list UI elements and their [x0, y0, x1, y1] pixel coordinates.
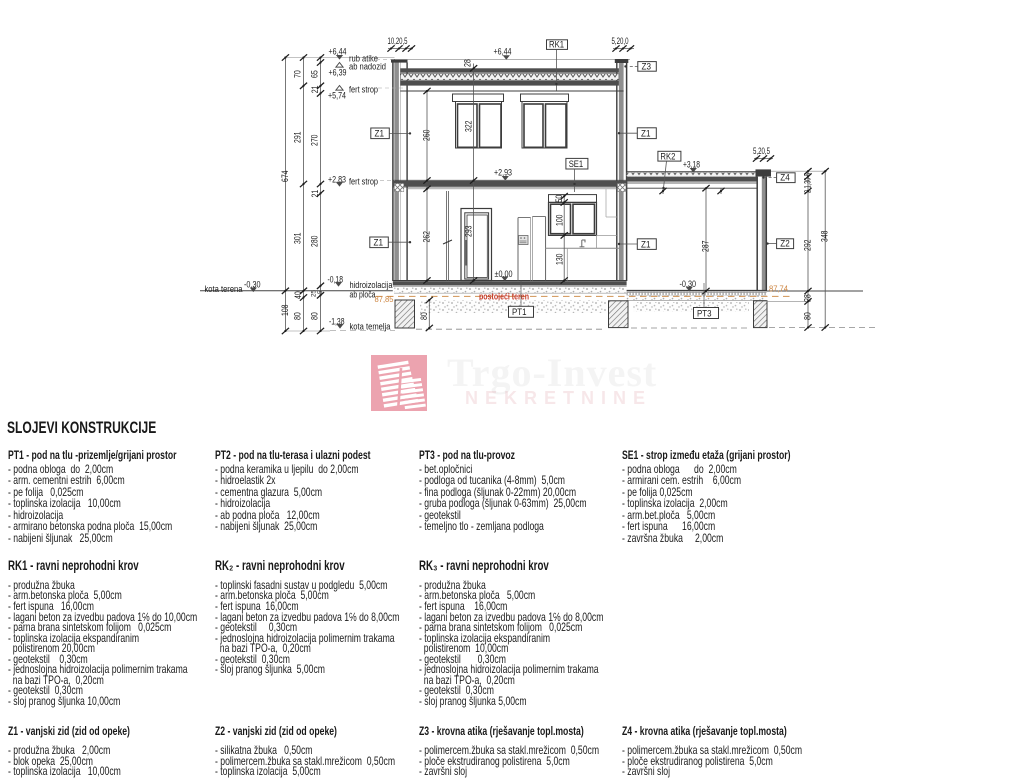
svg-text:Z1: Z1	[641, 239, 651, 249]
svg-text:5: 5	[317, 290, 324, 294]
svg-text:280: 280	[310, 235, 320, 247]
svg-text:291: 291	[293, 131, 303, 143]
svg-text:5,20,5: 5,20,5	[753, 146, 770, 156]
svg-text:287: 287	[701, 240, 711, 252]
svg-text:100: 100	[555, 214, 565, 226]
svg-text:Z4: Z4	[780, 173, 790, 183]
svg-text:ab nadozid: ab nadozid	[349, 62, 386, 72]
svg-text:322: 322	[463, 120, 473, 132]
svg-text:50: 50	[554, 195, 564, 203]
svg-text:674: 674	[280, 170, 290, 182]
svg-text:10,20,5: 10,20,5	[388, 36, 408, 46]
svg-text:80: 80	[419, 312, 429, 320]
svg-text:5,20,0: 5,20,0	[612, 36, 629, 46]
svg-text:Z1: Z1	[641, 128, 651, 138]
svg-text:293: 293	[463, 225, 473, 237]
svg-text:fert strop: fert strop	[349, 177, 378, 187]
svg-text:80: 80	[310, 312, 320, 320]
svg-text:ab ploča: ab ploča	[350, 290, 376, 300]
svg-text:Z2: Z2	[780, 239, 790, 249]
svg-text:348: 348	[820, 230, 830, 242]
svg-text:fert strop: fert strop	[349, 85, 378, 95]
svg-text:kota terena: kota terena	[205, 284, 243, 294]
svg-text:PT1: PT1	[512, 307, 527, 317]
svg-text:2 1,30 5: 2 1,30 5	[803, 173, 813, 193]
svg-text:301: 301	[293, 232, 303, 244]
svg-text:RK2: RK2	[660, 151, 675, 161]
svg-text:260: 260	[422, 129, 432, 141]
svg-text:28: 28	[803, 294, 813, 302]
svg-text:70: 70	[293, 70, 303, 78]
svg-text:kota temelja: kota temelja	[350, 322, 391, 332]
svg-text:+5,74: +5,74	[328, 91, 346, 101]
svg-text:SE1: SE1	[569, 159, 584, 169]
svg-text:262: 262	[422, 231, 432, 243]
svg-text:21: 21	[310, 85, 320, 93]
svg-text:+6,44: +6,44	[494, 47, 512, 57]
svg-text:270: 270	[310, 134, 320, 146]
svg-text:Z1: Z1	[375, 129, 385, 139]
svg-text:65: 65	[310, 70, 320, 78]
svg-text:28: 28	[463, 59, 473, 67]
svg-text:87,85: 87,85	[375, 294, 394, 304]
svg-text:PT3: PT3	[697, 308, 712, 318]
svg-text:Z1: Z1	[374, 238, 384, 248]
svg-text:hidroizolacija: hidroizolacija	[350, 280, 393, 290]
svg-text:87,74: 87,74	[769, 284, 788, 294]
svg-text:+6,39: +6,39	[329, 68, 347, 78]
svg-text:40: 40	[293, 291, 303, 299]
svg-text:80: 80	[803, 312, 813, 320]
svg-text:21: 21	[310, 190, 320, 198]
svg-text:80: 80	[293, 312, 303, 320]
svg-text:130: 130	[555, 253, 565, 265]
svg-text:108: 108	[280, 304, 290, 316]
svg-text:Z3: Z3	[642, 61, 652, 71]
svg-text:292: 292	[803, 239, 813, 251]
svg-text:RK1: RK1	[549, 40, 564, 50]
